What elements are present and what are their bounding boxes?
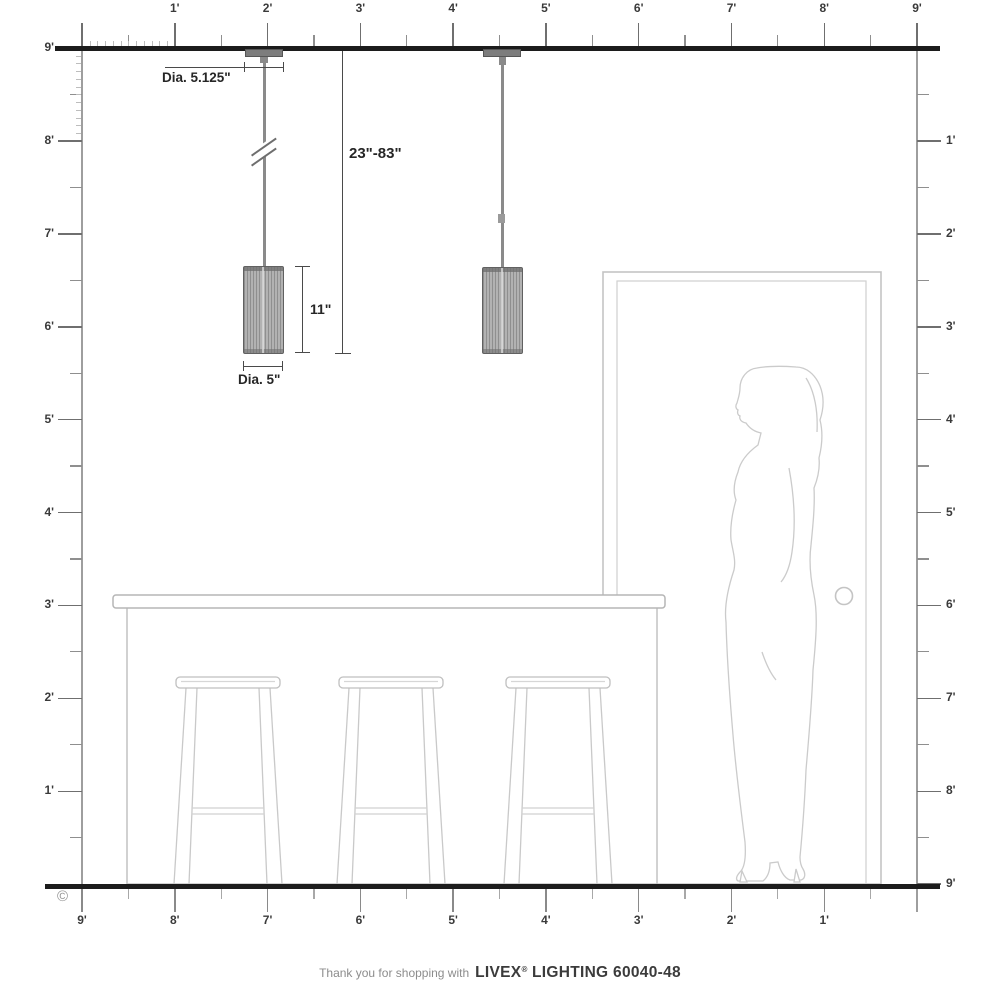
footer-caption: Thank you for shopping withLIVEX® LIGHTI… — [0, 964, 1000, 982]
ruler-label: 3' — [946, 319, 956, 333]
ruler-label: 5' — [541, 1, 551, 15]
ruler-label: 4' — [448, 1, 458, 15]
ruler-label: 1' — [28, 783, 54, 797]
ruler-label: 8' — [819, 1, 829, 15]
ruler-label: 8' — [28, 133, 54, 147]
ruler-label: 1' — [819, 913, 829, 927]
ruler-label: 2' — [727, 913, 737, 927]
ruler-label: 5' — [946, 505, 956, 519]
ruler-label: 3' — [28, 597, 54, 611]
ruler-label: 3' — [356, 1, 366, 15]
ruler-label: 4' — [541, 913, 551, 927]
ruler-label: 7' — [946, 690, 956, 704]
ruler-label: 9' — [28, 40, 54, 54]
scale-diagram: Dia. 5.125" 23"-83" 11" Dia. 5" 1'2'3'4'… — [0, 0, 1000, 1000]
ruler-label: 6' — [634, 1, 644, 15]
ruler-label: 9' — [946, 876, 956, 890]
ruler-label: 6' — [946, 597, 956, 611]
ruler-labels-layer: 1'2'3'4'5'6'7'8'9'9'8'7'6'5'4'3'2'1'1'2'… — [0, 0, 1000, 1000]
ruler-label: 4' — [28, 505, 54, 519]
ruler-label: 7' — [28, 226, 54, 240]
ruler-label: 7' — [727, 1, 737, 15]
ruler-label: 7' — [263, 913, 273, 927]
ruler-label: 8' — [170, 913, 180, 927]
ruler-label: 2' — [28, 690, 54, 704]
ruler-label: 4' — [946, 412, 956, 426]
ruler-label: 9' — [912, 1, 922, 15]
ruler-label: 3' — [634, 913, 644, 927]
ruler-label: 9' — [77, 913, 87, 927]
copyright-icon: © — [57, 888, 68, 905]
ruler-label: 1' — [946, 133, 956, 147]
ruler-label: 5' — [448, 913, 458, 927]
ruler-label: 1' — [170, 1, 180, 15]
ruler-label: 8' — [946, 783, 956, 797]
ruler-label: 2' — [263, 1, 273, 15]
ruler-label: 6' — [28, 319, 54, 333]
footer-thanks-text: Thank you for shopping with — [319, 966, 469, 980]
ruler-label: 2' — [946, 226, 956, 240]
product-number: LIGHTING 60040-48 — [527, 964, 681, 981]
ruler-label: 5' — [28, 412, 54, 426]
ruler-label: 6' — [356, 913, 366, 927]
brand-name: LIVEX — [475, 964, 521, 981]
